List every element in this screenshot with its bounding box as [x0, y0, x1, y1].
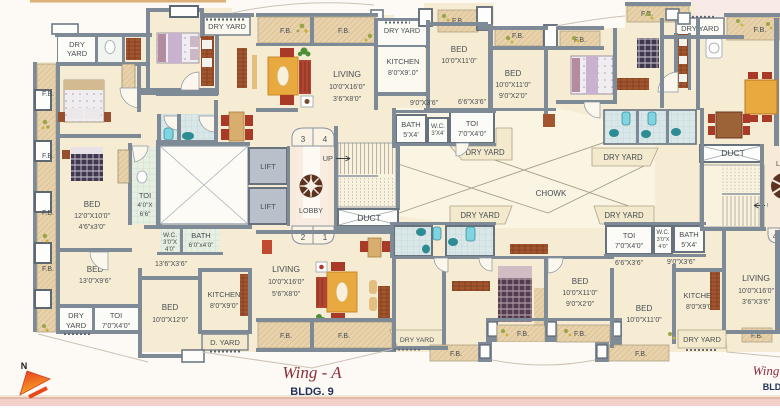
svg-text:7’0”X4’0”: 7’0”X4’0” [615, 243, 644, 250]
svg-text:LIFT: LIFT [260, 162, 276, 171]
svg-text:F.B.: F.B. [754, 25, 767, 34]
svg-text:LIFT: LIFT [260, 202, 276, 211]
svg-text:F.B.: F.B. [42, 210, 54, 217]
svg-text:TOI: TOI [623, 231, 635, 240]
svg-text:BED: BED [162, 303, 179, 312]
svg-text:DUCT: DUCT [721, 148, 745, 158]
svg-text:F.B.: F.B. [280, 333, 292, 340]
svg-text:6’6”X3’6”: 6’6”X3’6” [615, 260, 644, 267]
svg-text:5’X4’: 5’X4’ [403, 132, 419, 139]
svg-text:BLD: BLD [763, 382, 780, 392]
svg-text:10’0”X16’0”: 10’0”X16’0” [329, 84, 365, 91]
svg-text:BED: BED [636, 304, 653, 313]
svg-text:DUCT: DUCT [357, 213, 381, 223]
svg-text:TOI: TOI [139, 191, 151, 200]
svg-text:BED: BED [451, 45, 468, 54]
svg-text:F.B.: F.B. [338, 333, 350, 340]
svg-text:10’0”X16’0”: 10’0”X16’0” [268, 279, 304, 286]
svg-text:BED: BED [572, 277, 589, 286]
svg-text:DRY: DRY [69, 40, 85, 49]
svg-text:F.B.: F.B. [751, 333, 763, 340]
svg-text:LIVING: LIVING [272, 264, 300, 274]
svg-text:DRY YARD: DRY YARD [603, 153, 643, 162]
svg-text:BATH: BATH [401, 120, 420, 129]
svg-text:CHOWK: CHOWK [536, 189, 567, 198]
svg-text:F.B.: F.B. [338, 28, 350, 35]
svg-text:9’0”X2’0”: 9’0”X2’0” [566, 301, 595, 308]
svg-text:TOI: TOI [466, 119, 478, 128]
svg-text:BATH: BATH [191, 231, 210, 240]
svg-text:13’0”X9’6”: 13’0”X9’6” [79, 278, 112, 285]
svg-text:BLDG. 9: BLDG. 9 [290, 386, 333, 398]
svg-text:5’6”X8’0”: 5’6”X8’0” [272, 291, 301, 298]
svg-text:YARD: YARD [67, 49, 88, 58]
svg-text:9’0”X2’0”: 9’0”X2’0” [499, 93, 528, 100]
svg-text:7’0”X4’0”: 7’0”X4’0” [458, 131, 487, 138]
svg-text:10’0”X11’0”: 10’0”X11’0” [441, 58, 477, 65]
svg-text:12’0”X10’0”: 12’0”X10’0” [74, 213, 110, 220]
svg-text:DRY YARD: DRY YARD [604, 211, 644, 220]
svg-text:6’6”X3’6”: 6’6”X3’6” [458, 99, 487, 106]
svg-text:8’0”X9’.0”: 8’0”X9’.0” [388, 70, 419, 77]
svg-text:F.B.: F.B. [635, 351, 647, 358]
svg-text:4’6”x3’0”: 4’6”x3’0” [79, 224, 107, 231]
svg-text:6’6”: 6’6” [140, 211, 151, 218]
svg-text:10’0”X11’0”: 10’0”X11’0” [495, 82, 531, 89]
svg-text:9’0”X3’6”: 9’0”X3’6” [667, 259, 696, 266]
svg-text:UP: UP [323, 154, 333, 163]
svg-text:9’0”X3’6”: 9’0”X3’6” [410, 100, 439, 107]
svg-text:Wing - A: Wing - A [282, 363, 342, 382]
svg-text:3’6”X3’6”: 3’6”X3’6” [742, 299, 771, 306]
svg-text:3: 3 [301, 135, 306, 144]
svg-text:F.B.: F.B. [42, 266, 54, 273]
svg-text:1: 1 [323, 233, 328, 242]
svg-text:6’0”x4’0”: 6’0”x4’0” [189, 242, 214, 249]
svg-text:8’0”X9’0”: 8’0”X9’0” [210, 303, 239, 310]
svg-text:10’0”X11’0”: 10’0”X11’0” [626, 317, 662, 324]
svg-text:3’0”X: 3’0”X [657, 237, 670, 243]
svg-text:YARD: YARD [66, 321, 87, 330]
svg-text:F.B.: F.B. [512, 33, 524, 40]
svg-text:5’X4’: 5’X4’ [681, 242, 697, 249]
svg-text:10’0”X11’0”: 10’0”X11’0” [562, 290, 598, 297]
svg-text:4’0”X: 4’0”X [137, 202, 153, 209]
svg-text:3’X4’: 3’X4’ [431, 131, 444, 137]
svg-text:LIVING: LIVING [742, 273, 770, 283]
svg-text:W.C.: W.C. [657, 230, 670, 236]
svg-text:DRY YARD: DRY YARD [208, 22, 246, 31]
svg-text:7’0”X4’0”: 7’0”X4’0” [102, 323, 131, 330]
svg-text:F.B.: F.B. [42, 91, 54, 98]
svg-text:D. YARD: D. YARD [210, 338, 240, 347]
svg-text:N: N [21, 361, 28, 371]
svg-text:LI: LI [776, 161, 780, 168]
svg-text:2: 2 [301, 233, 306, 242]
svg-text:13’6”X3’6”: 13’6”X3’6” [155, 261, 188, 268]
svg-text:3’0”X: 3’0”X [163, 240, 177, 246]
svg-text:BATH: BATH [679, 230, 698, 239]
svg-text:DRY YARD: DRY YARD [683, 335, 721, 344]
svg-text:4: 4 [323, 135, 328, 144]
svg-text:BED: BED [84, 200, 101, 209]
svg-text:W.C.: W.C. [431, 123, 445, 130]
svg-text:LIVING: LIVING [333, 69, 361, 79]
svg-text:DRY YARD: DRY YARD [384, 26, 420, 35]
svg-text:BED: BED [505, 69, 522, 78]
svg-text:DRY: DRY [68, 311, 84, 320]
svg-text:KITCHEN: KITCHEN [208, 290, 241, 299]
svg-text:F.B.: F.B. [280, 28, 292, 35]
svg-text:Wing: Wing [753, 363, 780, 378]
svg-text:DRY YARD: DRY YARD [681, 24, 719, 33]
svg-text:KITCHEN: KITCHEN [387, 57, 420, 66]
svg-text:F.B.: F.B. [450, 351, 462, 358]
svg-text:DRY YARD: DRY YARD [465, 148, 505, 157]
svg-text:F.B.: F.B. [574, 331, 586, 338]
svg-text:3’6”X8’0”: 3’6”X8’0” [333, 96, 362, 103]
svg-text:LOBBY: LOBBY [299, 206, 323, 215]
svg-text:DRY YARD: DRY YARD [460, 211, 500, 220]
svg-text:10’0”X12’0”: 10’0”X12’0” [152, 317, 188, 324]
svg-text:F.B.: F.B. [42, 153, 54, 160]
svg-text:10’0”X16’0”: 10’0”X16’0” [738, 288, 774, 295]
svg-text:F.B.: F.B. [517, 331, 529, 338]
svg-text:DRY YARD: DRY YARD [400, 337, 434, 344]
svg-text:4’0”: 4’0” [658, 244, 667, 250]
svg-text:TOI: TOI [110, 311, 122, 320]
svg-text:W.C.: W.C. [163, 232, 177, 239]
